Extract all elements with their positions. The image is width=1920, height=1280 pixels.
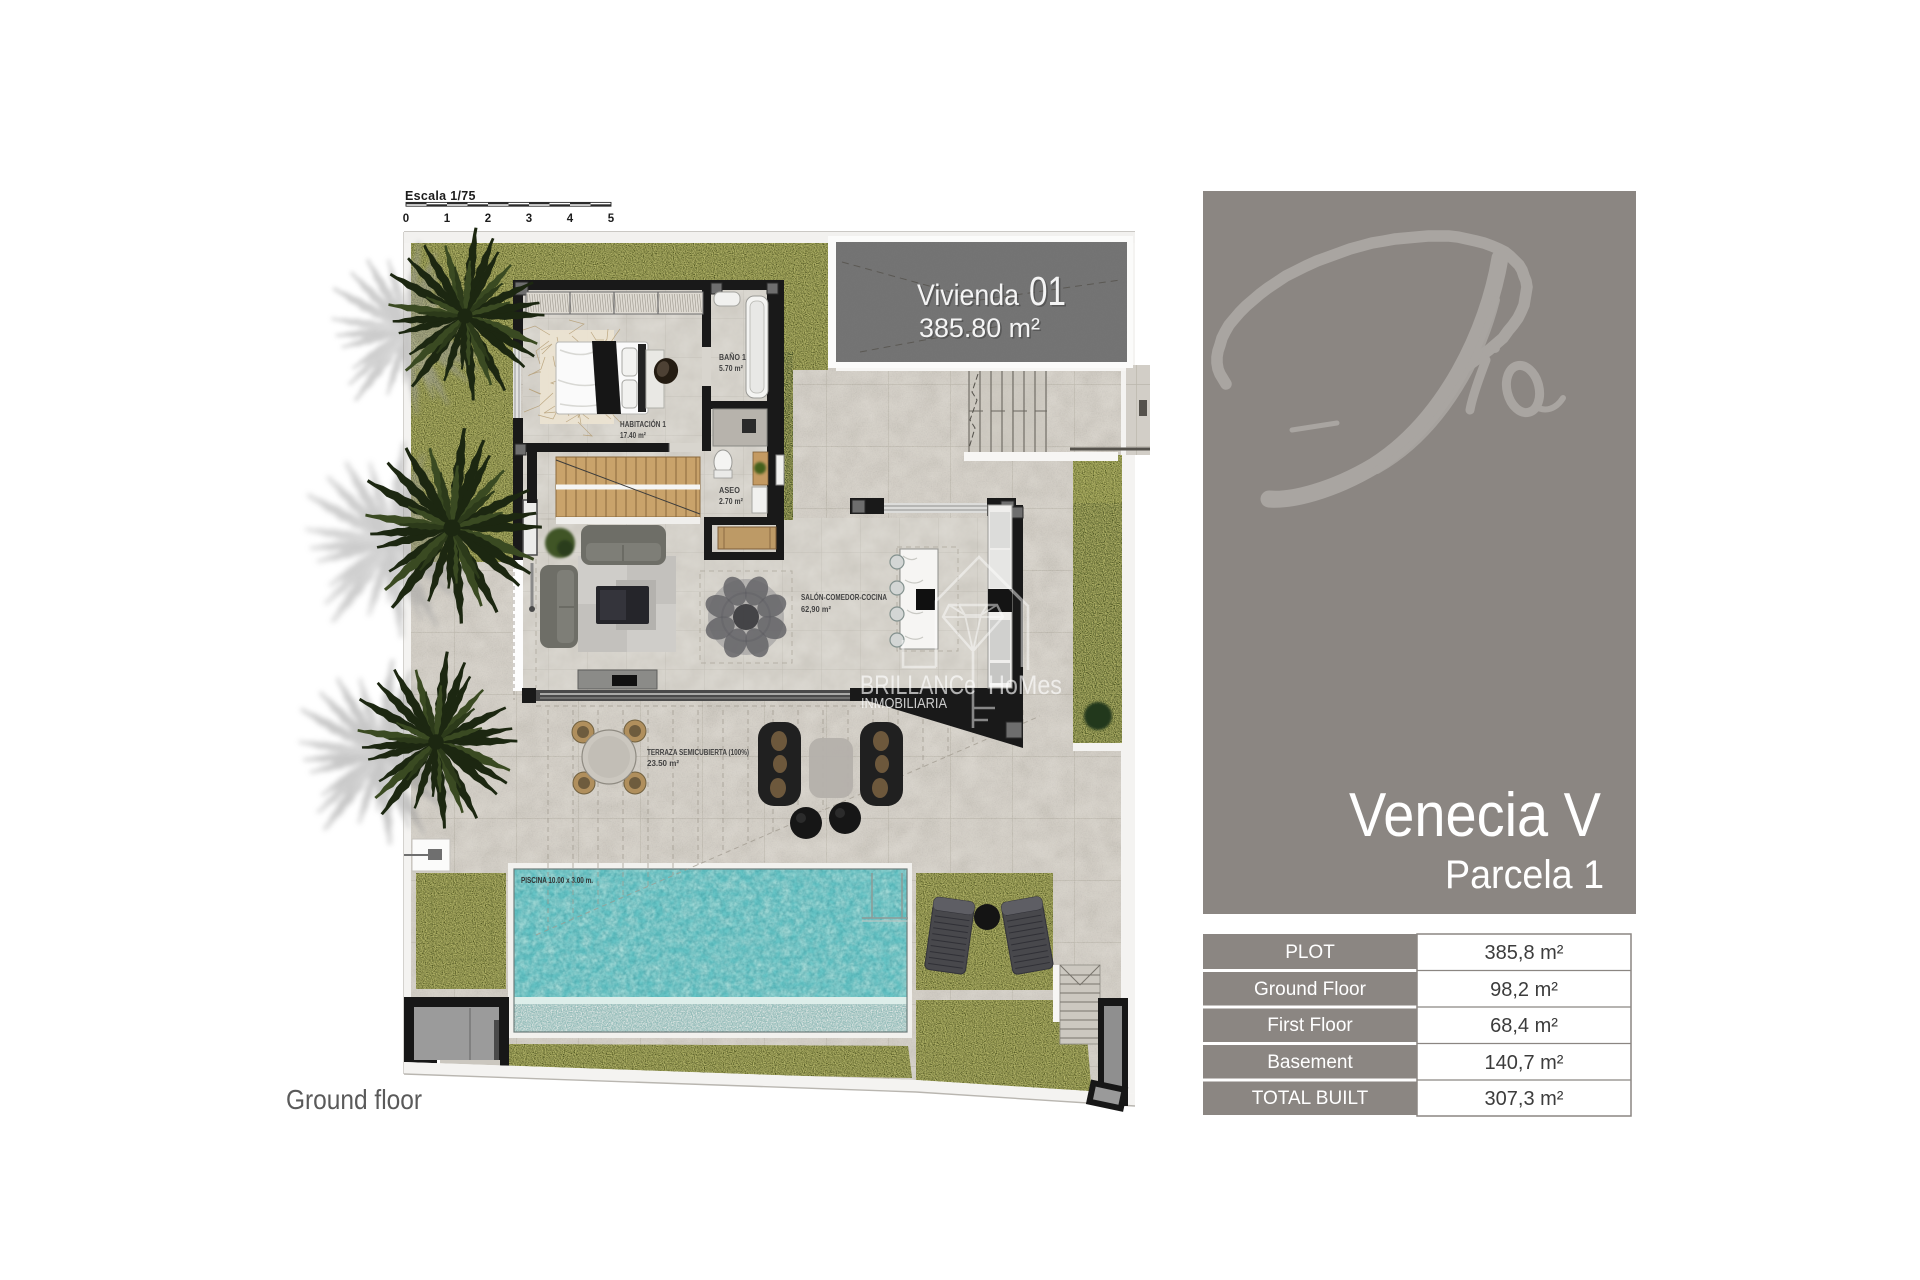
svg-text:2.70 m²: 2.70 m² [719,497,743,506]
svg-text:17.40 m²: 17.40 m² [620,431,646,440]
svg-text:3: 3 [526,213,532,225]
svg-text:Basement: Basement [1267,1052,1353,1073]
svg-text:385,8 m²: 385,8 m² [1485,942,1564,964]
svg-text:98,2 m²: 98,2 m² [1490,979,1558,1001]
svg-text:385.80 m²: 385.80 m² [919,313,1040,343]
svg-text:Escala 1/75: Escala 1/75 [405,189,476,203]
svg-text:TERRAZA SEMICUBIERTA (100%): TERRAZA SEMICUBIERTA (100%) [647,748,749,757]
svg-text:HoMes: HoMes [988,670,1062,700]
svg-text:0: 0 [403,213,409,225]
svg-text:PLOT: PLOT [1285,942,1335,963]
svg-text:Ground Floor: Ground Floor [1254,979,1367,1000]
svg-text:2: 2 [485,213,491,225]
svg-text:ASEO: ASEO [719,486,740,495]
svg-text:Ground floor: Ground floor [286,1084,422,1115]
svg-text:First Floor: First Floor [1267,1015,1353,1036]
svg-text:01: 01 [1029,268,1066,314]
svg-text:BAÑO 1: BAÑO 1 [719,353,746,362]
svg-text:HABITACIÓN 1: HABITACIÓN 1 [620,420,666,429]
svg-text:5.70 m²: 5.70 m² [719,364,743,373]
svg-text:23.50 m²: 23.50 m² [647,759,679,768]
svg-text:307,3 m²: 307,3 m² [1485,1088,1564,1110]
svg-text:Venecia V: Venecia V [1349,781,1602,850]
svg-text:TOTAL BUILT: TOTAL BUILT [1252,1088,1369,1109]
svg-text:5: 5 [608,213,615,225]
svg-text:68,4 m²: 68,4 m² [1490,1015,1558,1037]
svg-text:Vivienda: Vivienda [917,279,1019,312]
svg-text:62,90 m²: 62,90 m² [801,605,831,614]
svg-text:INMOBILIARIA: INMOBILIARIA [861,695,947,712]
svg-text:4: 4 [567,213,574,225]
svg-text:Parcela 1: Parcela 1 [1445,853,1604,897]
svg-text:SALÓN-COMEDOR-COCINA: SALÓN-COMEDOR-COCINA [801,593,887,602]
svg-text:PISCINA 10.00 x 3.00 m.: PISCINA 10.00 x 3.00 m. [521,876,593,885]
svg-text:1: 1 [444,213,451,225]
svg-text:140,7 m²: 140,7 m² [1485,1052,1564,1074]
